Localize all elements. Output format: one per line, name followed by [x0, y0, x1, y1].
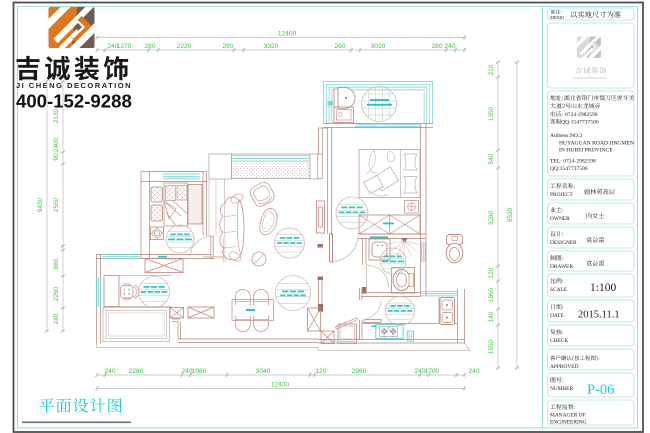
svg-text:QQ:1547737506: QQ:1547737506: [561, 120, 599, 126]
svg-text:90: 90: [53, 153, 60, 161]
svg-text:2015.11.1: 2015.11.1: [578, 310, 620, 321]
svg-text:2130: 2130: [53, 108, 60, 123]
svg-text:1350: 1350: [488, 106, 495, 121]
svg-text:DRAWER: DRAWER: [550, 264, 573, 270]
svg-text:400-152-9288: 400-152-9288: [16, 91, 132, 112]
svg-text:2560: 2560: [53, 197, 60, 212]
svg-text:1960: 1960: [488, 287, 495, 302]
svg-text:1060: 1060: [192, 368, 207, 375]
svg-text:240: 240: [53, 313, 60, 324]
svg-text:Address:NO.2: Address:NO.2: [550, 133, 582, 139]
svg-text:9430: 9430: [37, 197, 44, 212]
svg-text:P-06: P-06: [587, 382, 614, 398]
svg-text:9530: 9530: [507, 207, 514, 222]
svg-text:12400: 12400: [278, 31, 297, 38]
svg-text:140: 140: [488, 311, 495, 322]
svg-text:1700: 1700: [425, 368, 440, 375]
svg-text:MEMO: MEMO: [550, 15, 565, 20]
svg-text:2290: 2290: [53, 286, 60, 301]
svg-text:120: 120: [488, 267, 495, 278]
svg-text:OWNER: OWNER: [550, 216, 570, 222]
svg-text:240: 240: [104, 368, 115, 375]
svg-text:280: 280: [222, 43, 233, 50]
svg-text:JI CHENG DECORATION: JI CHENG DECORATION: [16, 81, 132, 90]
svg-text:2260: 2260: [129, 368, 144, 375]
svg-text:280: 280: [431, 43, 442, 50]
svg-text:12400: 12400: [271, 382, 290, 389]
svg-text:PROJECT: PROJECT: [550, 192, 573, 198]
svg-text:540: 540: [488, 153, 495, 164]
svg-text:ENGINEERING: ENGINEERING: [550, 420, 587, 426]
svg-text:SCALE: SCALE: [550, 287, 568, 293]
svg-text:240: 240: [468, 368, 479, 375]
svg-text:3010: 3010: [371, 43, 386, 50]
svg-text:CHECK: CHECK: [550, 338, 568, 344]
svg-text:2960: 2960: [352, 368, 367, 375]
svg-text:280: 280: [144, 43, 155, 50]
svg-text:IN HUBEI PROVINCE: IN HUBEI PROVINCE: [559, 148, 613, 154]
svg-text:NUMBER: NUMBER: [550, 386, 573, 392]
svg-text:3320: 3320: [264, 43, 279, 50]
svg-text:880: 880: [53, 258, 60, 269]
svg-text:1:100: 1:100: [590, 282, 616, 294]
svg-text:APPROVED: APPROVED: [550, 364, 579, 370]
svg-text:1550: 1550: [488, 339, 495, 354]
svg-text:210: 210: [488, 64, 495, 75]
svg-text:2220: 2220: [177, 43, 192, 50]
svg-text:2400: 2400: [53, 137, 60, 152]
svg-text:DESIGNER: DESIGNER: [550, 240, 577, 246]
svg-text:3280: 3280: [488, 210, 495, 225]
svg-text:MANAGER OF: MANAGER OF: [550, 413, 586, 419]
svg-text:0724-2982598: 0724-2982598: [565, 112, 598, 118]
svg-text:1270: 1270: [117, 43, 132, 50]
svg-text:120: 120: [315, 368, 326, 375]
svg-text:240: 240: [444, 43, 455, 50]
svg-text:3040: 3040: [256, 368, 271, 375]
svg-text:260: 260: [334, 43, 345, 50]
svg-text:TEL: 0724-2982598: TEL: 0724-2982598: [550, 159, 596, 165]
svg-text:HUYAGUAN ROAD JINGMEN: HUYAGUAN ROAD JINGMEN: [559, 141, 634, 147]
svg-text:QQ:1547737506: QQ:1547737506: [550, 166, 588, 172]
svg-text:DATE: DATE: [550, 313, 564, 319]
